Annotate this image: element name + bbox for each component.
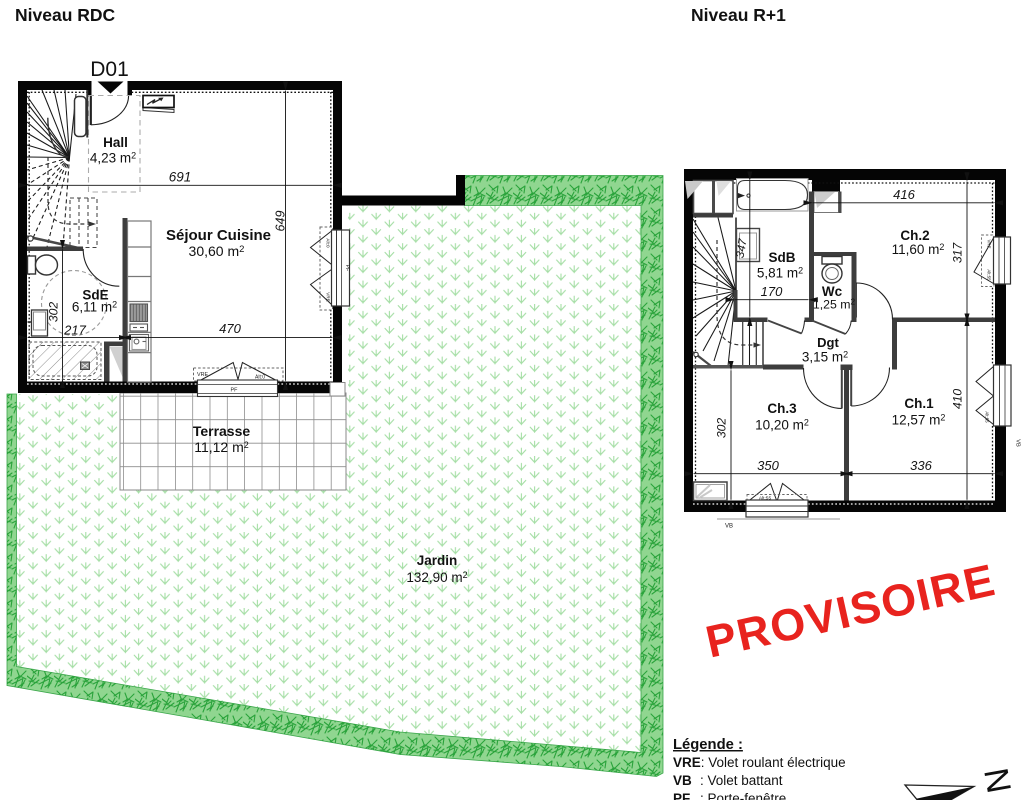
svg-text:317: 317 [951, 242, 965, 264]
svg-text:30,60 m2: 30,60 m2 [189, 243, 245, 259]
svg-text:470: 470 [219, 321, 241, 336]
svg-text:Terrasse: Terrasse [193, 423, 251, 439]
svg-text:VRE: Volet roulant électrique: VRE: Volet roulant électrique [673, 755, 846, 770]
svg-text:170: 170 [761, 284, 783, 299]
svg-text:Jardin: Jardin [417, 553, 458, 568]
svg-text:Alt:0: Alt:0 [326, 238, 331, 248]
svg-text:PF: PF [344, 265, 350, 272]
svg-text:VB: VB [1015, 439, 1021, 447]
svg-text:PF: Porte-fenêtre: PF: Porte-fenêtre [673, 791, 786, 800]
svg-text:Séjour Cuisine: Séjour Cuisine [166, 227, 271, 244]
svg-text:Hall: Hall [103, 135, 128, 150]
svg-text:649: 649 [274, 211, 288, 232]
svg-text:1,25 m2: 1,25 m2 [813, 297, 856, 312]
svg-text:Ch.1: Ch.1 [904, 396, 934, 411]
svg-text:132,90 m2: 132,90 m2 [406, 570, 467, 585]
svg-text:217: 217 [63, 323, 86, 338]
svg-text:410: 410 [951, 389, 965, 410]
svg-text:Niveau RDC: Niveau RDC [15, 5, 116, 25]
svg-text:Dgt: Dgt [817, 335, 839, 350]
svg-text:302: 302 [715, 418, 729, 439]
svg-text:VB: Volet battant: VB: Volet battant [673, 773, 783, 788]
svg-text:Ch.2: Ch.2 [900, 228, 929, 243]
svg-text:3,15 m2: 3,15 m2 [802, 350, 848, 365]
svg-text:Alt:55: Alt:55 [985, 411, 990, 423]
svg-text:VRE: VRE [987, 239, 992, 248]
svg-text:12,57 m2: 12,57 m2 [892, 413, 946, 428]
svg-text:VB: VB [725, 524, 733, 530]
svg-text:PF: PF [231, 388, 239, 394]
svg-text:VRE: VRE [197, 372, 208, 378]
svg-text:Ch.3: Ch.3 [767, 401, 797, 416]
svg-text:11,60 m2: 11,60 m2 [892, 242, 945, 257]
svg-text:Légende :: Légende : [673, 737, 743, 753]
svg-text:11,12 m2: 11,12 m2 [194, 439, 249, 455]
svg-text:10,20 m2: 10,20 m2 [755, 418, 809, 433]
svg-text:336: 336 [910, 458, 932, 473]
svg-text:5,81 m2: 5,81 m2 [757, 266, 803, 281]
svg-text:VRE: VRE [326, 292, 331, 301]
svg-text:SdB: SdB [769, 250, 796, 265]
svg-text:Niveau R+1: Niveau R+1 [691, 5, 786, 25]
svg-text:6,11 m2: 6,11 m2 [72, 300, 117, 315]
svg-text:Alt:55: Alt:55 [987, 269, 992, 281]
svg-text:4,23 m2: 4,23 m2 [90, 151, 136, 166]
svg-text:691: 691 [169, 170, 192, 185]
svg-text:350: 350 [757, 458, 779, 473]
svg-text:416: 416 [893, 187, 915, 202]
svg-text:302: 302 [47, 302, 61, 323]
svg-text:D01: D01 [90, 58, 129, 81]
